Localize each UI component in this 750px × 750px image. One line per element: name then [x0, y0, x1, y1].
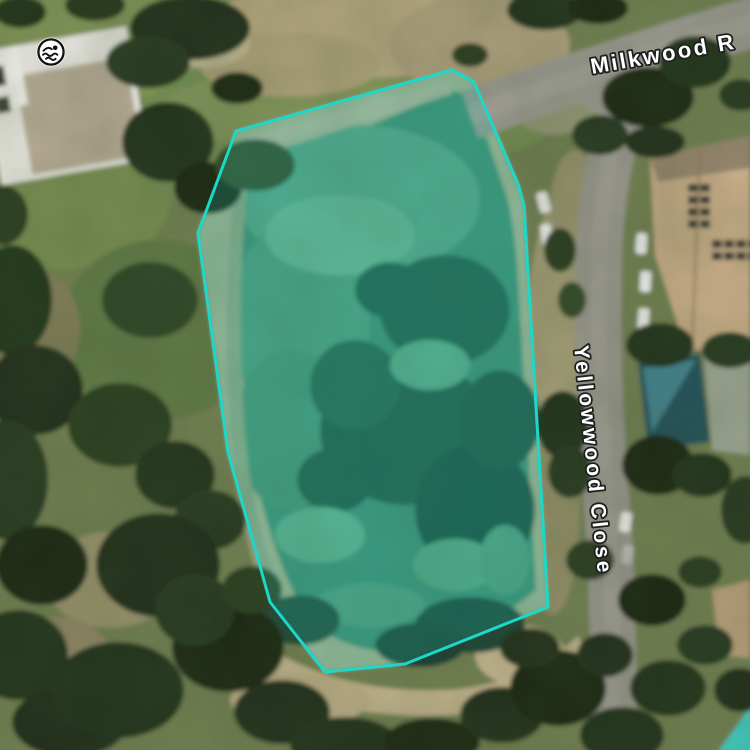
map-canvas[interactable]: Milkwood R Yellowwood Close [0, 0, 750, 750]
marker-badge-circle [37, 38, 66, 67]
swimming-spot-marker[interactable] [37, 38, 66, 67]
map-view[interactable]: Milkwood R Yellowwood Close [0, 0, 750, 750]
